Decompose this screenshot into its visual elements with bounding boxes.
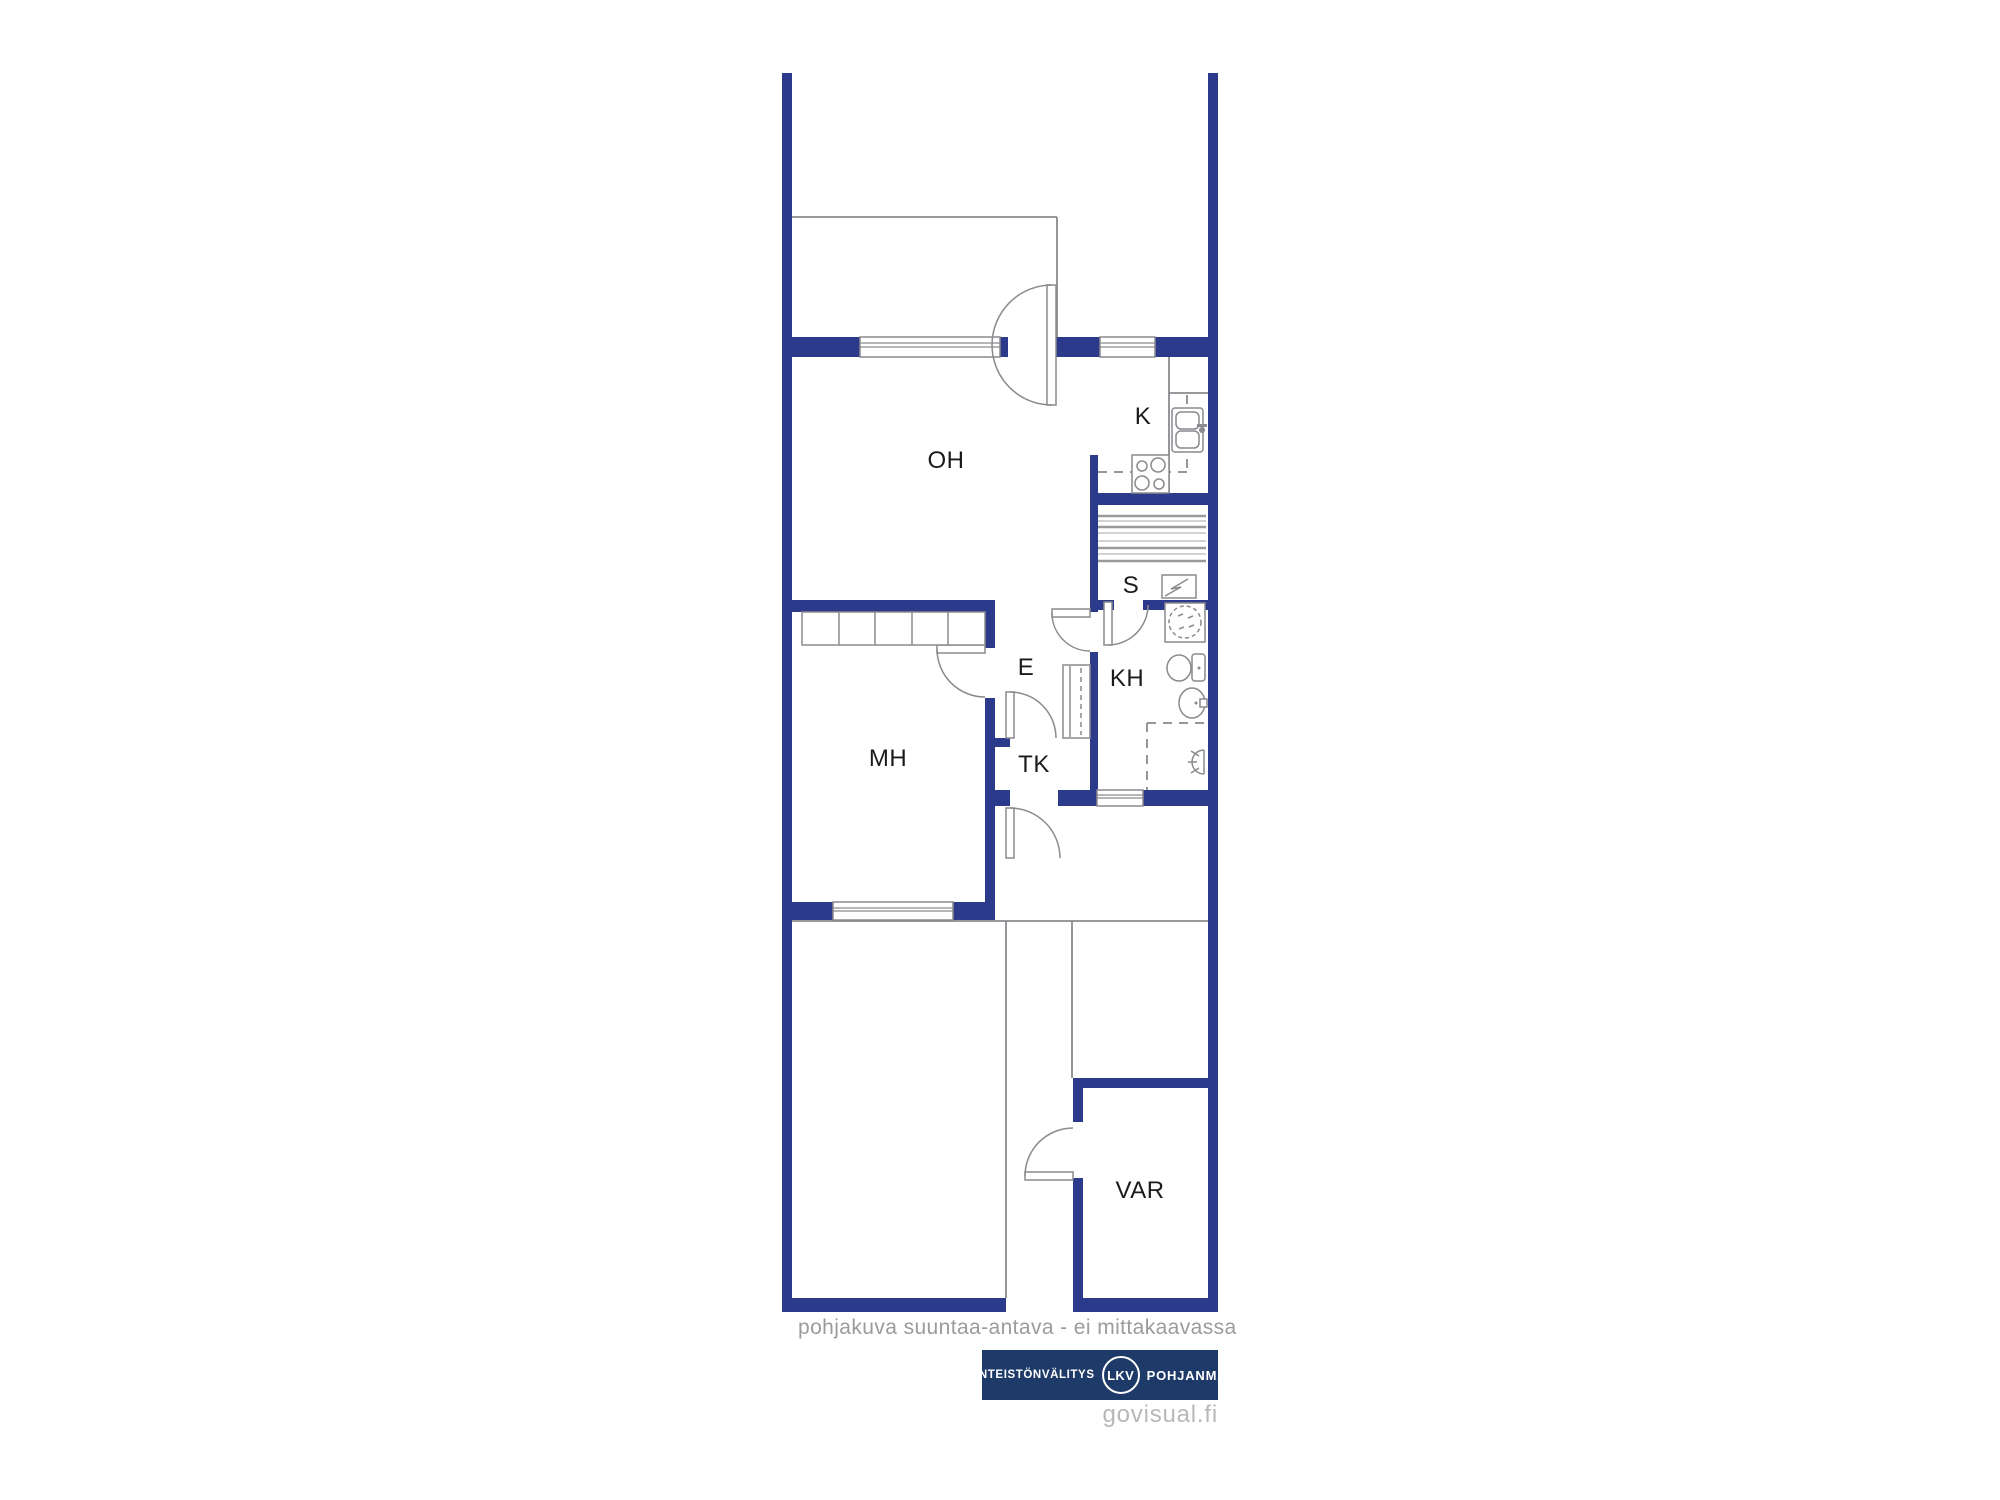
bedroom-door-arc <box>937 649 985 697</box>
wall-segment <box>995 738 1010 747</box>
wall-segment <box>1143 790 1208 806</box>
storage-door-arc <box>1025 1128 1073 1176</box>
wall-segment <box>1090 652 1098 792</box>
room-label-mh: MH <box>869 745 907 773</box>
wall-segment <box>782 73 792 1312</box>
vestibule-outer-door-leaf <box>1006 808 1014 858</box>
wall-segment <box>1058 790 1097 806</box>
floorplan-drawing <box>0 0 2000 1500</box>
hall-bathroom-door-leaf <box>1052 609 1090 617</box>
washbasin-icon <box>1179 688 1207 718</box>
hall-cabinet-icon <box>1063 665 1090 738</box>
wall-segment <box>1073 1088 1083 1122</box>
room-label-oh: OH <box>928 447 965 475</box>
wall-segment <box>792 337 860 357</box>
sauna-door-arc <box>1108 605 1148 645</box>
window <box>860 337 1000 357</box>
boundary-lines <box>792 217 1208 1298</box>
shower-head-icon <box>1188 750 1204 774</box>
room-label-tk: TK <box>1018 751 1050 779</box>
vestibule-inner-door-leaf <box>1006 692 1014 738</box>
wall-segment <box>1090 493 1208 505</box>
kitchen-sink-icon <box>1172 408 1207 452</box>
shower-square-icon <box>1165 603 1205 642</box>
wall-segment <box>792 600 985 612</box>
lkv-badge-text: LKV <box>1107 1368 1134 1383</box>
storage-door-leaf <box>1025 1172 1073 1180</box>
wall-segment <box>953 902 995 920</box>
walls <box>782 73 1218 1312</box>
window <box>1100 337 1155 357</box>
wall-segment <box>1090 505 1098 612</box>
room-label-e: E <box>1018 654 1035 682</box>
hall-bathroom-door-arc <box>1052 613 1090 651</box>
vestibule-outer-door-arc <box>1010 808 1060 858</box>
room-label-kh: KH <box>1110 665 1144 693</box>
wardrobe-icon <box>802 612 985 645</box>
wall-segment <box>985 600 995 648</box>
agency-logo: KIINTEISTÖNVÄLITYS LKV POHJANMAA <box>982 1350 1218 1400</box>
fixtures <box>802 408 1207 774</box>
wall-segment <box>1052 337 1100 357</box>
window <box>1097 790 1143 806</box>
room-label-k: K <box>1135 403 1152 431</box>
room-label-s: S <box>1123 572 1140 600</box>
wall-segment <box>1155 337 1208 357</box>
lkv-badge: LKV <box>1102 1356 1140 1394</box>
floorplan-page: OH K S KH E TK MH VAR pohjakuva suuntaa-… <box>0 0 2000 1500</box>
vestibule-inner-door-arc <box>1010 692 1056 738</box>
room-label-var: VAR <box>1115 1177 1164 1205</box>
wall-segment <box>1000 337 1008 357</box>
wall-segment <box>1073 1298 1218 1312</box>
sauna-benches <box>1098 516 1206 561</box>
entrance-door-leaf <box>1047 285 1056 405</box>
toilet-icon <box>1167 654 1205 681</box>
sauna-heater-icon <box>1162 575 1196 598</box>
bedroom-door-leaf <box>937 645 985 653</box>
wall-segment <box>1208 73 1218 1312</box>
wall-segment <box>782 1298 1006 1312</box>
wall-segment <box>792 902 833 920</box>
window <box>833 902 953 920</box>
wall-segment <box>985 698 995 902</box>
logo-text-left: KIINTEISTÖNVÄLITYS <box>962 1369 1094 1381</box>
wall-segment <box>1073 1078 1208 1088</box>
wall-segment <box>993 790 1010 806</box>
wall-segment <box>1073 1178 1083 1298</box>
logo-text-right: POHJANMAA <box>1147 1368 1238 1383</box>
watermark-text: govisual.fi <box>1102 1401 1218 1429</box>
stove-icon <box>1132 455 1169 493</box>
sauna-door-leaf <box>1104 602 1112 645</box>
doors <box>937 285 1148 1180</box>
disclaimer-text: pohjakuva suuntaa-antava - ei mittakaava… <box>798 1316 1237 1340</box>
